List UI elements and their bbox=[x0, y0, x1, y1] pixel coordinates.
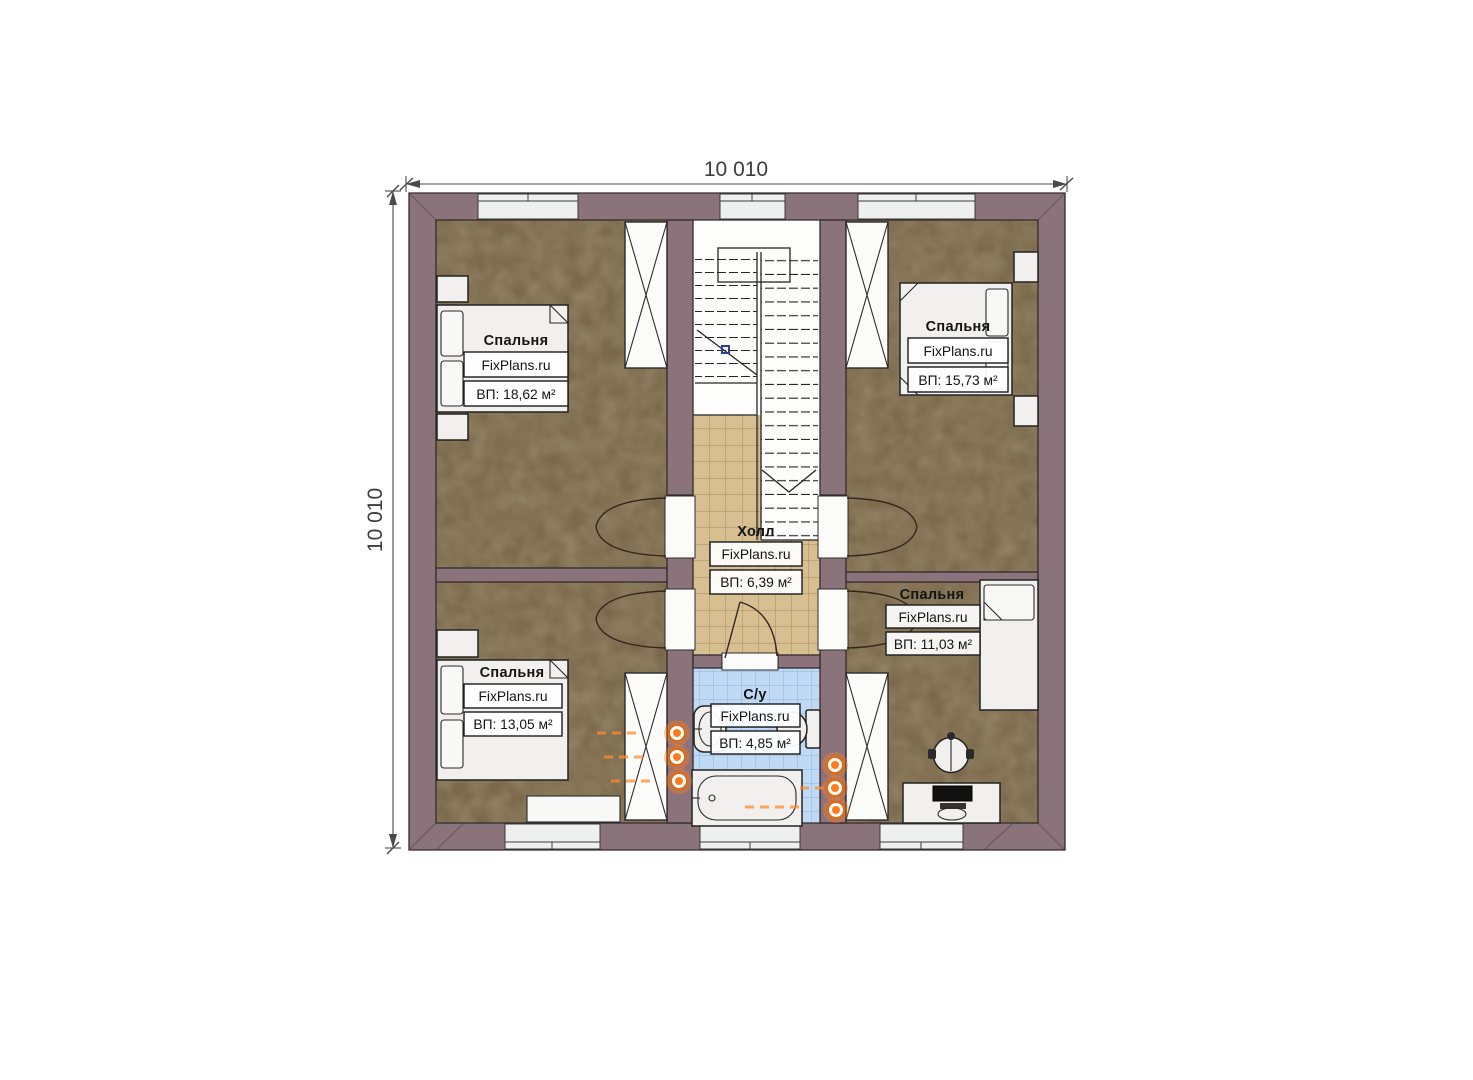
room-name: Холл bbox=[737, 524, 775, 540]
room-area: ВП: 13,05 м² bbox=[473, 717, 553, 732]
nightstand bbox=[437, 276, 468, 302]
radiator-icon bbox=[664, 720, 690, 746]
bathtub-icon bbox=[692, 770, 802, 826]
door-opening bbox=[665, 589, 695, 650]
room-name: Спальня bbox=[900, 587, 965, 603]
floor-plan-drawing: Спальня FixPlans.ru ВП: 18,62 м² Спальня… bbox=[0, 0, 1473, 1080]
room-area: ВП: 11,03 м² bbox=[894, 637, 973, 652]
watermark: FixPlans.ru bbox=[923, 344, 992, 359]
room-name: Спальня bbox=[926, 319, 991, 335]
corridor-wall-left-pier bbox=[667, 557, 693, 590]
vent-shaft-x bbox=[846, 222, 888, 368]
corridor-wall-left-upper bbox=[667, 220, 693, 495]
room-area: ВП: 18,62 м² bbox=[476, 387, 556, 402]
dimension-arrow bbox=[406, 180, 420, 188]
radiator-icon bbox=[664, 744, 690, 770]
door-opening bbox=[818, 589, 848, 650]
dimension-value-top: 10 010 bbox=[704, 158, 768, 181]
radiator-icon bbox=[822, 752, 848, 778]
bathroom-wall-left-stub bbox=[693, 655, 722, 668]
watermark: FixPlans.ru bbox=[478, 689, 547, 704]
stair-flight-left bbox=[695, 252, 757, 383]
radiator-icon bbox=[666, 768, 692, 794]
nightstand bbox=[1014, 396, 1038, 426]
dimension-value-left: 10 010 bbox=[364, 488, 387, 552]
dimension-top: 10 010 bbox=[400, 158, 1073, 192]
window bbox=[505, 824, 600, 849]
vent-shaft-x bbox=[625, 222, 667, 368]
window-bench bbox=[527, 796, 620, 822]
room-name: Спальня bbox=[484, 333, 549, 349]
floor-plan-page: Спальня FixPlans.ru ВП: 18,62 м² Спальня… bbox=[0, 0, 1473, 1080]
dimension-arrow bbox=[1053, 180, 1067, 188]
door-opening bbox=[665, 496, 695, 558]
window bbox=[478, 194, 578, 219]
bathroom-wall-right-stub bbox=[778, 655, 820, 668]
dimension-left: 10 010 bbox=[364, 185, 401, 854]
vent-shaft-x bbox=[625, 673, 667, 820]
window bbox=[700, 824, 800, 849]
room-area: ВП: 6,39 м² bbox=[720, 575, 792, 590]
watermark: FixPlans.ru bbox=[898, 610, 967, 625]
nightstand bbox=[437, 630, 478, 657]
radiator-icon bbox=[823, 797, 849, 823]
nightstand bbox=[1014, 252, 1038, 282]
window bbox=[720, 194, 785, 219]
nightstand bbox=[437, 414, 468, 440]
window bbox=[858, 194, 975, 219]
room-area: ВП: 4,85 м² bbox=[719, 736, 791, 751]
stair-flight-right bbox=[761, 252, 818, 540]
room-name: Спальня bbox=[480, 665, 545, 681]
divider-wall-left bbox=[436, 568, 667, 582]
watermark: FixPlans.ru bbox=[721, 547, 790, 562]
corridor-wall-right-pier bbox=[820, 557, 846, 590]
vent-shaft-x bbox=[846, 673, 888, 820]
door-opening bbox=[818, 496, 848, 558]
corridor-wall-right-upper bbox=[820, 220, 846, 495]
watermark: FixPlans.ru bbox=[481, 358, 550, 373]
room-area: ВП: 15,73 м² bbox=[918, 373, 998, 388]
watermark: FixPlans.ru bbox=[720, 709, 789, 724]
door-opening bbox=[722, 653, 778, 670]
room-name: С/у bbox=[743, 687, 766, 703]
single-bed bbox=[980, 580, 1038, 710]
window bbox=[880, 824, 963, 849]
desk-computer bbox=[903, 783, 1000, 823]
